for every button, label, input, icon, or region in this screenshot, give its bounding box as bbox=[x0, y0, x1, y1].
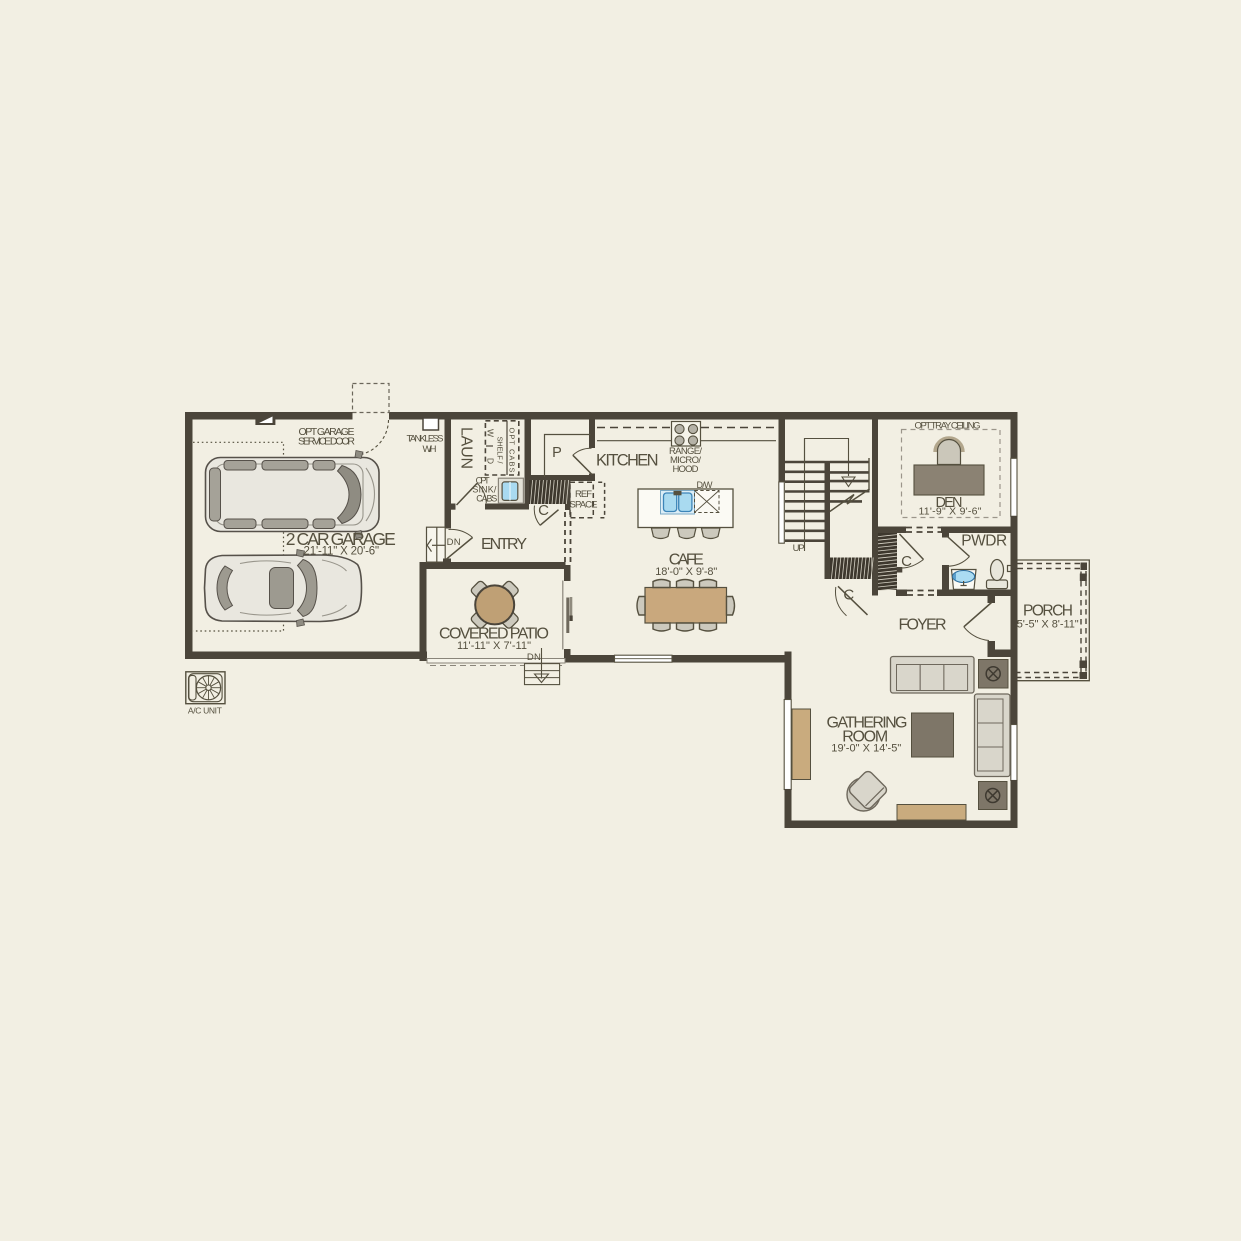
svg-text:ENTRY: ENTRY bbox=[481, 536, 527, 553]
svg-text:LAUN: LAUN bbox=[458, 427, 475, 469]
svg-text:W/H: W/H bbox=[423, 444, 437, 455]
svg-text:C: C bbox=[843, 587, 854, 604]
svg-text:5'-5" X 8'-11": 5'-5" X 8'-11" bbox=[1017, 618, 1079, 630]
svg-text:19'-0" X 14'-5": 19'-0" X 14'-5" bbox=[831, 743, 901, 755]
svg-text:UP: UP bbox=[793, 543, 805, 554]
svg-text:HOOD: HOOD bbox=[673, 464, 699, 475]
svg-text:SPACE: SPACE bbox=[570, 500, 598, 511]
svg-text:A/C UNIT: A/C UNIT bbox=[188, 706, 222, 716]
svg-text:DN: DN bbox=[447, 537, 461, 548]
svg-text:21'-11" X 20'-6": 21'-11" X 20'-6" bbox=[304, 546, 380, 558]
svg-text:SHELF /: SHELF / bbox=[496, 437, 505, 465]
svg-text:C: C bbox=[901, 553, 912, 570]
svg-text:KITCHEN: KITCHEN bbox=[596, 451, 659, 469]
svg-text:18'-0" X 9'-8": 18'-0" X 9'-8" bbox=[655, 566, 717, 578]
svg-text:FOYER: FOYER bbox=[899, 617, 947, 634]
svg-text:W: W bbox=[486, 429, 496, 437]
svg-text:REF: REF bbox=[575, 489, 592, 500]
svg-text:D/W: D/W bbox=[697, 480, 714, 490]
svg-text:SERVICE DOOR: SERVICE DOOR bbox=[298, 436, 355, 448]
svg-text:P: P bbox=[552, 445, 562, 461]
svg-text:11'-9" X 9'-6": 11'-9" X 9'-6" bbox=[919, 506, 982, 518]
svg-text:CABS: CABS bbox=[476, 493, 497, 503]
svg-text:PWDR: PWDR bbox=[961, 533, 1007, 550]
svg-text:PORCH: PORCH bbox=[1023, 603, 1073, 620]
svg-text:11'-11" X 7'-11": 11'-11" X 7'-11" bbox=[457, 640, 531, 652]
svg-text:DN: DN bbox=[527, 652, 541, 663]
svg-text:OPT TRAY CEILING: OPT TRAY CEILING bbox=[915, 420, 981, 431]
svg-text:D: D bbox=[486, 458, 496, 464]
svg-text:C: C bbox=[538, 502, 549, 519]
svg-text:OPT CABS: OPT CABS bbox=[508, 428, 517, 473]
